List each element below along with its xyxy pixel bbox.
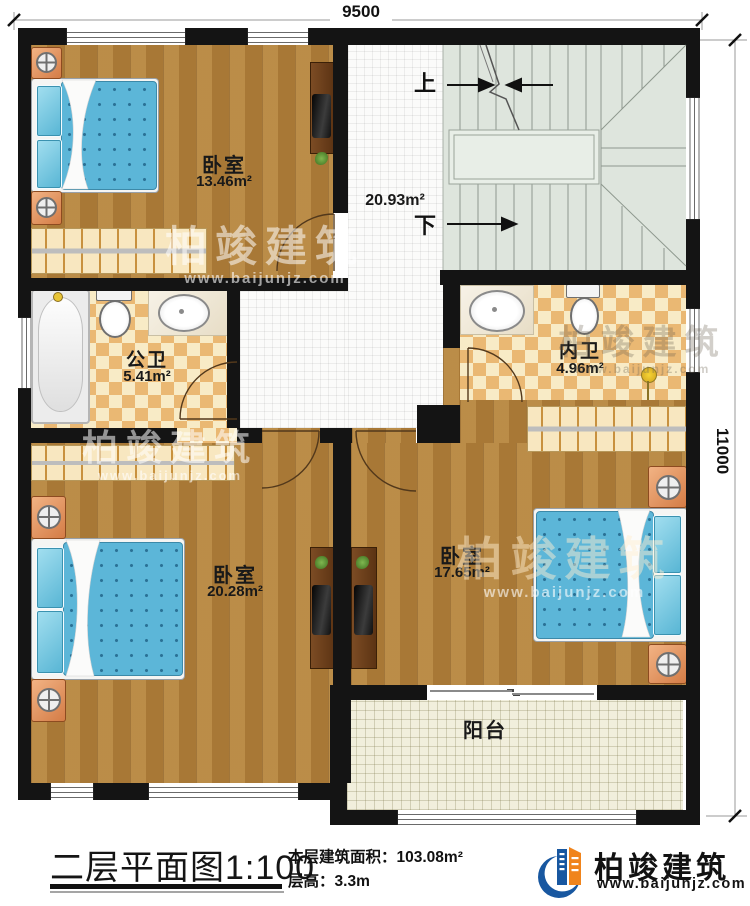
window xyxy=(686,308,700,373)
lamp-icon xyxy=(37,505,61,529)
room-area-ensuite-bath: 4.96m² xyxy=(520,360,640,377)
floor-height-label: 层高： xyxy=(288,873,335,890)
lamp-icon xyxy=(656,475,681,500)
wall-corridor-bottom-b xyxy=(237,428,262,443)
pillow xyxy=(36,610,64,674)
sink-basin xyxy=(158,294,210,332)
pillow xyxy=(36,547,64,609)
window xyxy=(18,317,31,389)
dimension-height: 11000 xyxy=(712,416,732,486)
nightstand xyxy=(31,496,66,539)
pillow xyxy=(36,85,62,137)
monitor-icon xyxy=(354,585,373,635)
floor-height-value: 3.3m xyxy=(335,873,370,890)
title-underline xyxy=(50,884,282,889)
stairs-up-label: 上 xyxy=(414,66,436,98)
window xyxy=(66,28,186,45)
closet-left-bedroom xyxy=(31,445,235,481)
nightstand xyxy=(31,191,62,225)
nightstand xyxy=(31,47,62,79)
window xyxy=(50,783,94,800)
wall-corridor-bottom-d xyxy=(417,405,460,443)
toilet-tank xyxy=(566,284,600,298)
room-area-bedroom-right: 17.65m² xyxy=(397,564,527,581)
lamp-icon xyxy=(37,688,61,712)
blanket xyxy=(536,511,654,639)
room-label-ensuite-bath: 内卫 xyxy=(520,336,640,363)
pillow xyxy=(36,139,62,189)
wall-corridor-bottom-a xyxy=(31,428,177,443)
floor-door-opening-left xyxy=(262,428,320,443)
pillow xyxy=(653,515,682,574)
window xyxy=(247,28,309,45)
lamp-icon xyxy=(36,52,57,73)
floor-area-label: 本层建筑面积： xyxy=(288,849,397,866)
wall-balcony-top-b xyxy=(597,685,686,700)
room-area-bedroom-top: 13.46m² xyxy=(149,173,299,190)
floor-height-info: 层高：3.3m xyxy=(288,869,370,891)
floor-area-value: 103.08m² xyxy=(397,849,463,866)
sink-drain-icon xyxy=(492,307,497,312)
bed-top-bedroom xyxy=(31,78,159,193)
wall-center-bedrooms xyxy=(333,443,351,783)
bathtub xyxy=(31,289,90,424)
floor-plan: 卧室 13.46m² 20.93m² 公卫 5.41m² 内卫 4.96m² 卧… xyxy=(0,0,750,906)
floor-area-info: 本层建筑面积：103.08m² xyxy=(288,845,463,867)
toilet-bowl xyxy=(570,297,599,335)
nightstand xyxy=(648,466,687,508)
room-area-hallway: 20.93m² xyxy=(330,192,460,210)
floor-door-opening-right xyxy=(352,428,416,443)
wall-lamp-icon xyxy=(641,367,657,383)
bed-right-bedroom xyxy=(533,508,688,642)
balcony-railing xyxy=(397,810,637,825)
nightstand xyxy=(648,644,687,684)
stairs-down-label: 下 xyxy=(414,208,436,240)
wall-ensuite-left xyxy=(443,285,460,348)
floor-stairwell xyxy=(443,45,686,270)
lamp-icon xyxy=(36,197,57,218)
pillow xyxy=(653,574,682,636)
sink-drain-icon xyxy=(179,309,184,314)
blanket xyxy=(61,81,157,190)
closet-right-bedroom xyxy=(527,406,687,452)
dimension-width: 9500 xyxy=(330,2,392,22)
monitor-icon xyxy=(312,94,331,138)
wall-stairs-bottom xyxy=(440,270,700,285)
room-area-bedroom-left: 20.28m² xyxy=(160,583,310,600)
wall-bedroom-top-right xyxy=(333,45,348,213)
wall-below-top-bedroom xyxy=(18,278,348,291)
wall-corridor-bottom-c xyxy=(320,428,352,443)
closet-top-bedroom xyxy=(31,228,207,274)
brand-website: www.baijunjz.com xyxy=(597,876,746,892)
bathtub-basin xyxy=(38,297,83,412)
page-title: 二层平面图1:100 xyxy=(50,840,315,889)
lamp-icon xyxy=(656,652,681,677)
nightstand xyxy=(31,679,66,722)
room-area-public-bath: 5.41m² xyxy=(87,368,207,385)
tub-faucet-icon xyxy=(53,292,63,302)
wall-public-bath-right xyxy=(227,291,240,428)
floor-hallway-horizontal xyxy=(240,291,348,428)
room-label-balcony: 阳台 xyxy=(420,714,550,743)
toilet-bowl xyxy=(99,300,131,338)
wall-balcony-top-a xyxy=(351,685,427,700)
window xyxy=(686,97,700,220)
floor-door-opening-bath xyxy=(177,428,237,443)
sink-basin xyxy=(469,290,525,332)
monitor-icon xyxy=(312,585,331,635)
window xyxy=(148,783,299,800)
wall-left xyxy=(18,28,31,800)
brand-logo-icon xyxy=(535,841,591,901)
title-underline-thin xyxy=(50,891,284,893)
sliding-door xyxy=(427,686,597,699)
